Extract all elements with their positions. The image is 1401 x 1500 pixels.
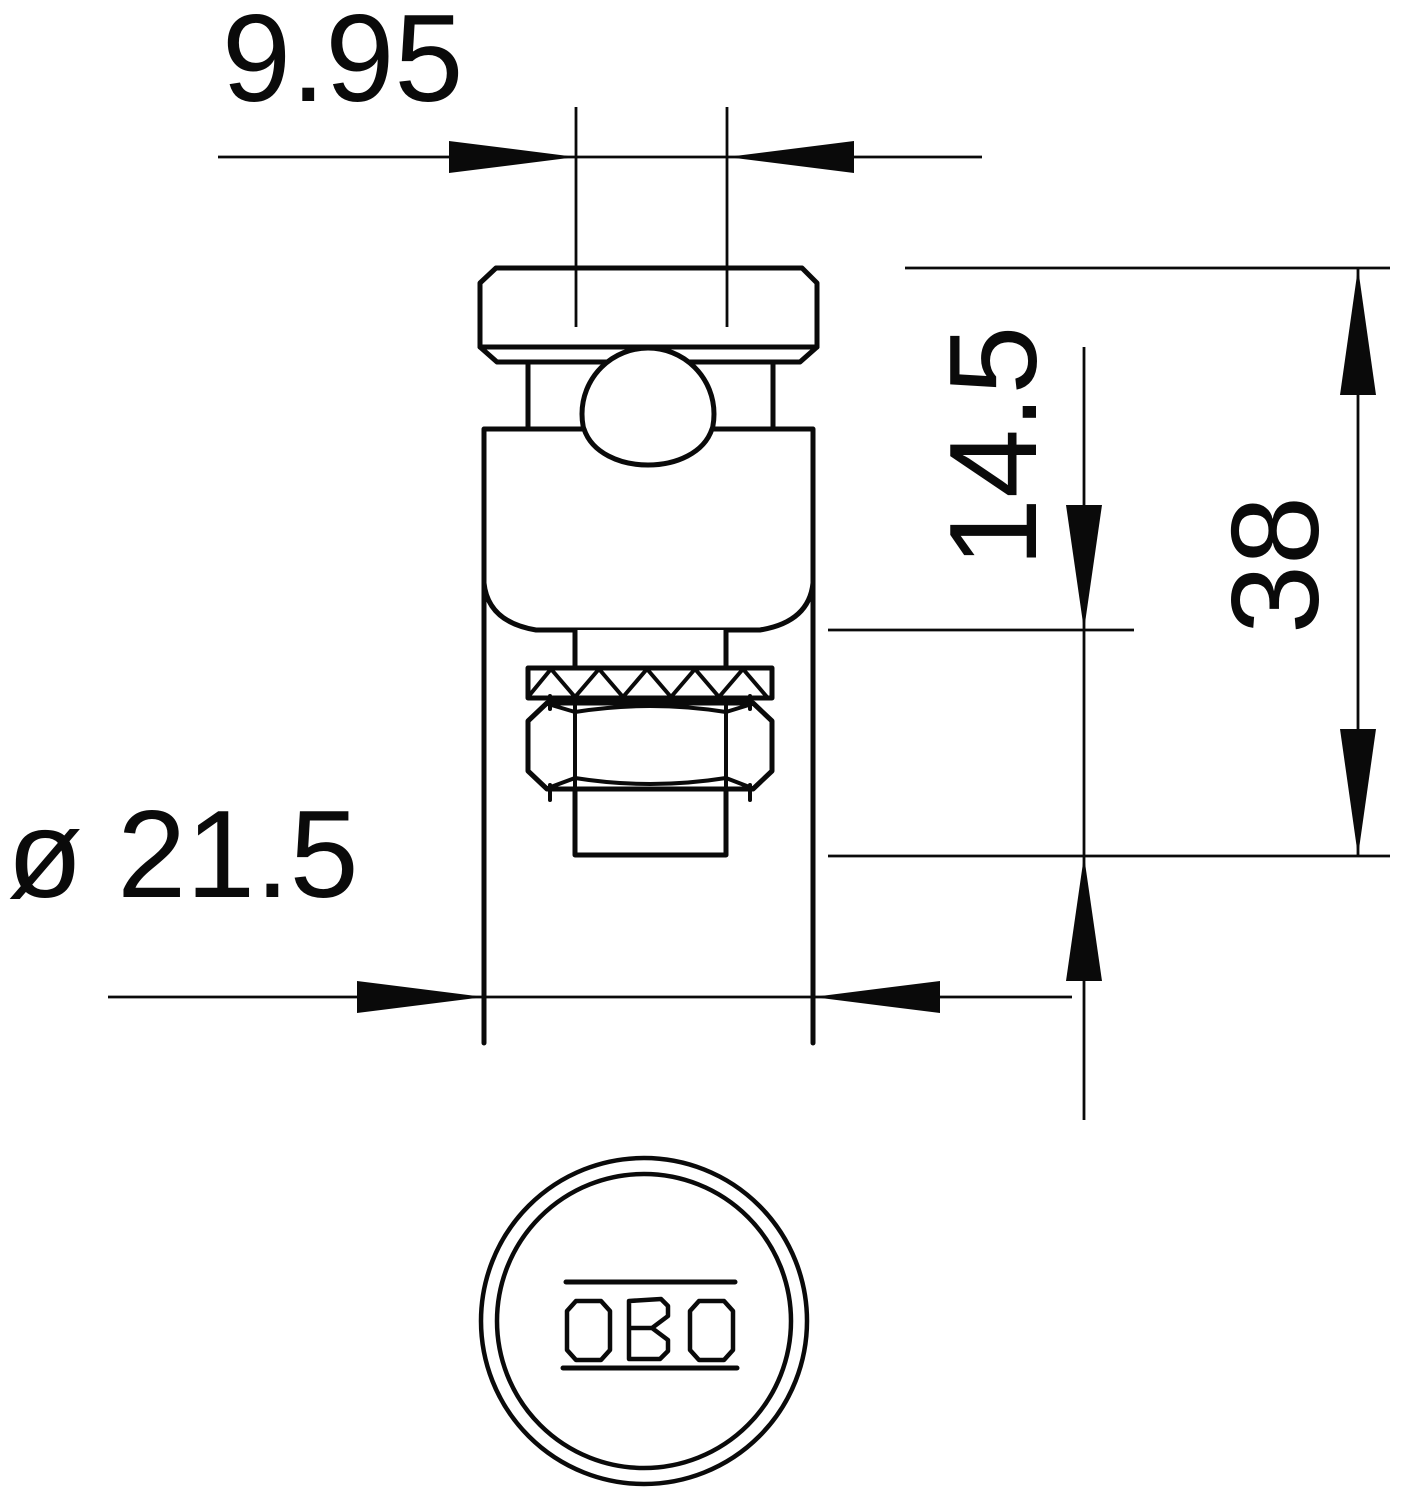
obo-logo-letters <box>567 1299 733 1360</box>
arrowhead-left-icon <box>727 141 854 173</box>
arrowhead-up-icon <box>1340 268 1376 395</box>
nut-outline <box>528 703 772 789</box>
arrowhead-right-icon <box>449 141 576 173</box>
letter-b <box>629 1299 668 1359</box>
bottom-view: OBO <box>481 1158 807 1484</box>
dimension-total-height: 38 <box>828 268 1390 856</box>
dimension-label-stud-width: 9.95 <box>222 0 463 128</box>
arrowhead-down-icon <box>1340 729 1376 856</box>
arrowhead-up-icon <box>1066 856 1102 981</box>
dimension-label-total-height: 38 <box>1207 496 1345 634</box>
arrowhead-down-icon <box>1066 505 1102 630</box>
letter-o-2 <box>690 1301 733 1360</box>
technical-drawing-page: 9.95 14.5 38 ø 21.5 OBO <box>0 0 1401 1500</box>
dimension-label-stud-protrusion: 14.5 <box>925 326 1063 567</box>
dimension-body-diameter: ø 21.5 <box>7 786 1072 1013</box>
letter-o-1 <box>567 1301 610 1360</box>
obo-logo: OBO <box>563 1282 737 1368</box>
front-view <box>480 268 817 1043</box>
arrowhead-left-icon <box>813 981 940 1013</box>
arrowhead-right-icon <box>357 981 484 1013</box>
technical-drawing-canvas: 9.95 14.5 38 ø 21.5 OBO <box>0 0 1401 1500</box>
serrated-washer <box>528 668 772 698</box>
hex-nut <box>528 696 772 800</box>
dimension-label-body-diameter: ø 21.5 <box>7 786 359 924</box>
inner-circle <box>497 1174 791 1468</box>
outer-circle <box>481 1158 807 1484</box>
